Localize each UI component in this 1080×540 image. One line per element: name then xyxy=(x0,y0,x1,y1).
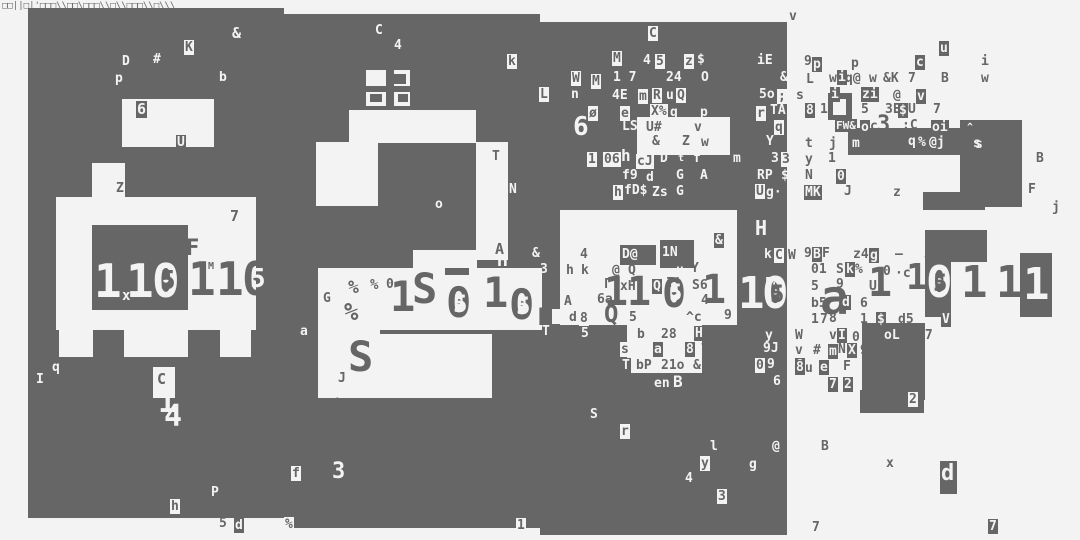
glyph: 1 xyxy=(868,263,892,303)
glyph: 24 xyxy=(666,71,682,84)
glyph: m xyxy=(733,152,741,165)
glyph: u xyxy=(939,41,949,56)
glyph: h xyxy=(170,499,180,514)
glyph: 8 xyxy=(579,311,589,326)
glyph: a xyxy=(653,342,663,357)
glyph: 1 xyxy=(1023,263,1050,307)
glyph: % xyxy=(790,135,798,148)
glyph: f xyxy=(291,466,301,481)
glyph: U# xyxy=(645,120,663,135)
glyph: % xyxy=(284,517,294,532)
glyph: 5 xyxy=(861,103,869,116)
glyph: D xyxy=(122,55,130,68)
glyph: 1 xyxy=(961,261,988,305)
glyph: d xyxy=(569,311,577,324)
glyph: q xyxy=(492,368,505,390)
glyph: y xyxy=(805,153,813,166)
glyph: 4 xyxy=(394,39,402,52)
glyph: 3 xyxy=(781,152,791,167)
glyph: 8 xyxy=(805,103,815,118)
glyph: 3 xyxy=(332,461,345,483)
glyph: r xyxy=(756,106,766,121)
glyph: 1 7 xyxy=(613,71,636,84)
glyph: s xyxy=(975,138,983,151)
glyph: 7 xyxy=(933,103,941,116)
glyph: ;C xyxy=(902,119,918,132)
glyph: p xyxy=(812,57,822,72)
glyph: # xyxy=(153,53,161,66)
glyph: B xyxy=(941,72,949,85)
block-rect xyxy=(349,110,476,143)
glyph: z xyxy=(684,54,694,69)
glyph: 21o xyxy=(661,359,684,372)
glyph: G xyxy=(322,291,332,306)
glyph: % xyxy=(370,278,378,292)
glyph: C xyxy=(648,26,658,41)
glyph: U xyxy=(908,103,916,116)
glyph: v xyxy=(795,344,803,357)
glyph: j xyxy=(829,137,837,150)
glyph: N xyxy=(509,183,517,196)
glyph: # xyxy=(18,404,26,417)
glyph: 4E xyxy=(612,89,628,102)
glyph: M xyxy=(612,51,622,66)
glyph: O xyxy=(701,71,709,84)
glyph: 1 xyxy=(811,313,819,326)
glyph: 4 xyxy=(685,472,693,485)
glyph: bP xyxy=(636,359,652,372)
glyph: o xyxy=(435,198,443,211)
glyph: m xyxy=(828,344,838,359)
glyph: f9 xyxy=(622,169,638,182)
glyph: 1 xyxy=(860,313,868,326)
glyph: $ xyxy=(330,396,344,420)
glyph: ; xyxy=(777,89,787,104)
glyph: D xyxy=(660,152,668,165)
glyph: 9 xyxy=(724,309,732,322)
glyph: 5 xyxy=(933,271,947,295)
glyph: 3 xyxy=(717,489,727,504)
glyph: v xyxy=(916,89,926,104)
glyph: & xyxy=(714,233,724,248)
glyph: 4 xyxy=(643,54,651,67)
glyph: 5 xyxy=(629,311,637,324)
glyph: u xyxy=(666,89,674,102)
glyph: q xyxy=(908,135,916,148)
glyph: & xyxy=(693,359,701,372)
glyph: 1 xyxy=(216,256,244,302)
glyph: # xyxy=(566,327,574,340)
glyph: h xyxy=(566,264,574,277)
glyph: & xyxy=(232,26,241,41)
glyph: 3 xyxy=(877,114,890,136)
glyph: 9 xyxy=(804,247,812,260)
glyph: 5 xyxy=(160,268,176,294)
glyph: d xyxy=(941,463,954,485)
glyph: 4 xyxy=(164,402,182,432)
glyph: F xyxy=(822,247,830,260)
glyph: 5 xyxy=(580,326,590,341)
glyph: 6 xyxy=(573,114,589,140)
glyph: q xyxy=(52,361,60,374)
glyph: @ xyxy=(772,440,780,453)
glyph: p xyxy=(700,106,708,119)
glyph: 6 xyxy=(773,375,781,388)
glyph: @ xyxy=(893,89,901,102)
glyph: 6 xyxy=(136,101,147,118)
block-rect xyxy=(318,334,492,398)
glyph: b xyxy=(219,71,227,84)
glyph: s xyxy=(620,342,630,357)
glyph: Y xyxy=(691,262,699,275)
glyph: m xyxy=(852,137,860,150)
glyph: S xyxy=(590,408,598,421)
glyph: D@ xyxy=(622,248,638,261)
glyph: k xyxy=(507,54,517,69)
glyph: 0 xyxy=(755,358,765,373)
glyph: $ xyxy=(876,312,886,327)
glyph: t xyxy=(678,154,684,164)
glyph: f xyxy=(693,152,701,165)
glyph: % xyxy=(348,279,359,297)
block-rect xyxy=(124,330,188,357)
glyph: d xyxy=(841,295,851,310)
glyph: Z xyxy=(682,135,690,148)
glyph: F xyxy=(843,360,851,373)
glyph: b5 xyxy=(811,297,827,310)
glyph: # xyxy=(813,344,821,357)
glyph: R xyxy=(652,88,662,103)
glyph: o xyxy=(860,120,870,135)
glyph: m xyxy=(638,89,648,104)
glyph: 2 xyxy=(843,377,853,392)
block-rect xyxy=(370,94,382,102)
glyph: 7 xyxy=(988,519,998,534)
glyph: 9 xyxy=(860,344,868,357)
glyph: x xyxy=(886,457,894,470)
glyph: S xyxy=(412,268,437,310)
glyph: 06 xyxy=(603,152,621,167)
glyph: A xyxy=(700,169,708,182)
glyph: 1 xyxy=(820,103,828,116)
glyph: 8 xyxy=(829,312,837,325)
glyph: V xyxy=(612,358,620,371)
glyph: % xyxy=(855,263,863,276)
glyph: ø xyxy=(588,106,598,121)
glyph: l xyxy=(701,343,709,356)
glyph: g xyxy=(749,458,757,471)
glyph: q xyxy=(670,106,678,119)
glyph: d5 xyxy=(898,313,914,326)
glyph: G xyxy=(676,169,684,182)
glyph: k xyxy=(764,248,772,261)
glyph: I xyxy=(36,373,44,386)
glyph: s xyxy=(796,89,804,102)
block-rect xyxy=(316,142,378,206)
glyph: w xyxy=(869,72,877,85)
glyph: C xyxy=(774,248,784,263)
glyph: 0 xyxy=(836,169,846,184)
glyph: B xyxy=(812,247,822,262)
glyph: 3 xyxy=(771,152,779,165)
glyph: 7 xyxy=(230,209,239,224)
glyph: n xyxy=(571,88,579,101)
glyph: % xyxy=(552,309,562,324)
glyph: zi xyxy=(861,87,879,102)
glyph: v xyxy=(694,121,702,134)
glyph: W xyxy=(571,71,581,86)
glyph: Y xyxy=(766,135,774,148)
glyph: L xyxy=(806,73,814,86)
glyph: p xyxy=(851,57,859,70)
glyph: % xyxy=(628,375,636,388)
glyph: B xyxy=(1036,152,1044,165)
glyph: 5 xyxy=(669,283,682,305)
glyph: v xyxy=(789,10,797,23)
glyph: 3 xyxy=(540,263,548,276)
glyph: u xyxy=(805,362,813,375)
glyph: MK xyxy=(804,185,822,200)
glyph: l xyxy=(710,440,718,453)
glyph: j xyxy=(1052,201,1060,214)
glyph: X% xyxy=(650,104,668,119)
block-rect xyxy=(398,94,408,102)
glyph: d xyxy=(646,171,654,184)
glyph: 7 xyxy=(908,72,916,85)
glyph: N xyxy=(805,169,813,182)
glyph: C xyxy=(375,24,383,37)
glyph: 1 xyxy=(94,258,122,304)
glyph: Zs xyxy=(652,186,668,199)
glyph: oi xyxy=(931,120,949,135)
glyph: h xyxy=(613,185,623,200)
glyph: $ xyxy=(697,53,705,66)
glyph: 5 xyxy=(770,282,784,306)
glyph: w xyxy=(701,136,709,149)
glyph: ^ xyxy=(967,123,973,133)
glyph: I xyxy=(837,328,847,343)
glyph: 1 xyxy=(516,518,526,533)
glyph: 9J xyxy=(763,342,779,355)
glyph: & xyxy=(532,247,540,260)
glyph: v xyxy=(829,329,837,342)
glyph: Q xyxy=(652,279,662,294)
glyph: 7 xyxy=(812,521,820,534)
glyph: 1 xyxy=(996,261,1023,305)
glyph: 1 xyxy=(587,152,597,167)
glyph: ^c xyxy=(686,311,702,324)
glyph: Q xyxy=(676,88,686,103)
glyph: h xyxy=(621,148,631,164)
glyph: T xyxy=(491,149,501,164)
glyph: 1 xyxy=(738,272,765,316)
glyph: i xyxy=(981,55,989,68)
glyph: X xyxy=(847,343,857,358)
glyph: M xyxy=(591,74,601,89)
glyph: 9 xyxy=(767,358,775,371)
glyph: % xyxy=(917,135,927,150)
glyph: a xyxy=(300,325,308,338)
glyph: S xyxy=(348,336,373,378)
glyph: 1 xyxy=(906,260,928,296)
block-rect xyxy=(386,70,394,106)
glyph: 5 xyxy=(655,54,665,69)
glyph: K xyxy=(184,40,194,55)
glyph: t xyxy=(805,137,813,150)
glyph: 4 xyxy=(580,248,588,261)
glyph: &K xyxy=(883,72,899,85)
glyph: H xyxy=(755,218,767,238)
glitch-canvas: □□||□|'□□□\\□□\□□□\\□\\□□□\\□\\\ &KD#pbC… xyxy=(0,0,1080,540)
glyph: & xyxy=(652,135,660,148)
glyph: q@ xyxy=(845,72,861,85)
glyph: N xyxy=(838,343,846,356)
glyph: B xyxy=(672,373,684,391)
glyph: 5 xyxy=(250,266,266,292)
glyph: g· xyxy=(766,186,782,199)
glyph: 8 xyxy=(685,342,695,357)
glyph: % xyxy=(344,300,358,324)
glyph: d xyxy=(234,518,244,533)
glyph: oL xyxy=(884,329,900,342)
glyph: 27 xyxy=(917,329,933,342)
glyph: 1 xyxy=(828,152,836,165)
glyph: TA xyxy=(770,104,786,117)
glyph: # xyxy=(790,375,798,388)
glyph: $Z xyxy=(781,169,797,182)
glyph: V xyxy=(941,312,951,327)
glyph: T xyxy=(542,325,550,338)
glyph: 5o xyxy=(759,88,775,101)
glyph: T xyxy=(621,358,631,373)
block-rect xyxy=(923,192,985,210)
glyph: x xyxy=(122,289,130,303)
glyph: A xyxy=(563,294,573,309)
glyph: 1N xyxy=(662,246,678,259)
glyph: W xyxy=(787,248,797,263)
glyph: 1 xyxy=(702,270,726,310)
glyph: z xyxy=(893,186,901,199)
glyph: G xyxy=(150,150,174,190)
glyph: Q xyxy=(604,302,618,326)
glyph: y xyxy=(700,456,710,471)
glyph: RP xyxy=(757,169,773,182)
glyph: p xyxy=(115,72,123,85)
glyph: $ xyxy=(898,103,908,118)
glyph: F xyxy=(1028,183,1036,196)
glyph: 9 xyxy=(804,55,812,68)
glyph: G xyxy=(676,185,684,198)
glyph: Z xyxy=(115,181,125,196)
glyph: z4 xyxy=(853,248,869,261)
glyph: 1 xyxy=(483,272,508,314)
glyph: 28 xyxy=(661,328,677,341)
glyph: i xyxy=(830,87,840,102)
glyph: cJ xyxy=(636,154,654,169)
glyph: LS xyxy=(622,120,638,133)
block-rect xyxy=(220,330,251,357)
glyph: b xyxy=(637,328,645,341)
glyph: 1 xyxy=(627,272,651,312)
glyph: w xyxy=(981,72,989,85)
glyph: U xyxy=(755,184,765,199)
glyph: 7 xyxy=(820,313,828,326)
glyph: 3 xyxy=(590,327,598,340)
glyph: L xyxy=(539,87,549,102)
glyph: 1 xyxy=(188,256,216,302)
glyph: P xyxy=(211,486,219,499)
block-rect xyxy=(445,268,469,275)
glyph: w xyxy=(829,72,837,85)
glyph: iE xyxy=(757,54,773,67)
glyph: q xyxy=(774,120,784,135)
glyph: B xyxy=(821,440,829,453)
block-rect xyxy=(59,330,93,357)
glyph: r xyxy=(620,424,630,439)
glyph: — xyxy=(895,248,903,261)
glyph: W xyxy=(795,329,803,342)
glyph: 5 xyxy=(453,292,467,316)
glyph: fD$ xyxy=(624,184,647,197)
glyph: 5 xyxy=(811,280,819,293)
glyph: 8 xyxy=(795,360,805,375)
block-rect xyxy=(394,74,406,84)
glyph: en xyxy=(653,376,671,391)
glyph: FW& xyxy=(835,119,857,132)
glyph: c xyxy=(915,55,925,70)
glyph: 7 xyxy=(492,173,505,195)
glyph: & xyxy=(780,71,788,84)
glyph: 8 xyxy=(645,375,653,388)
glyph: 2 xyxy=(908,392,918,407)
glyph: 5 xyxy=(219,517,227,530)
glyph: J xyxy=(338,372,346,385)
glyph: 7 xyxy=(828,377,838,392)
glyph: 5 xyxy=(516,294,530,318)
glyph: J xyxy=(844,185,852,198)
glyph: e xyxy=(819,360,829,375)
glyph: U xyxy=(176,135,186,150)
glyph: @j xyxy=(929,136,945,149)
glyph: H xyxy=(694,326,704,341)
glyph: 6 xyxy=(860,297,868,310)
glyph: k xyxy=(581,264,589,277)
